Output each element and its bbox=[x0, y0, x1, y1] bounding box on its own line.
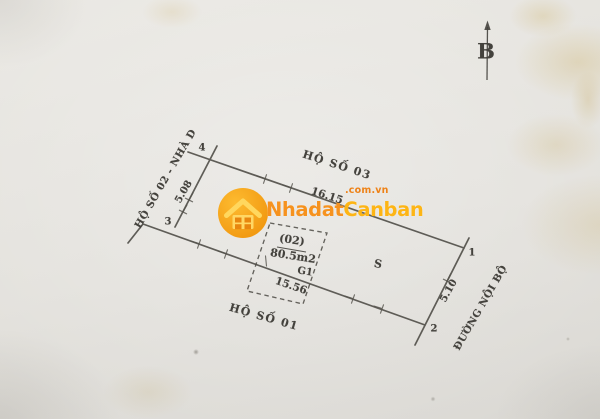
scanned-plot-sketch: NhadatCanban .com.vn B HỘ SỐ 03 16.15 HỘ… bbox=[0, 0, 600, 419]
north-compass-letter: B bbox=[477, 39, 495, 64]
corner-1: 1 bbox=[469, 248, 476, 259]
parcel-gate-label: G1 bbox=[296, 265, 313, 278]
corner-3: 3 bbox=[165, 217, 172, 228]
house-icon bbox=[218, 188, 268, 238]
watermark-logo-circle bbox=[218, 188, 268, 238]
north-arrow-head bbox=[484, 21, 490, 31]
corner-2: 2 bbox=[431, 324, 438, 335]
watermark-brand-text: NhadatCanban bbox=[266, 198, 423, 221]
corner-4: 4 bbox=[199, 143, 206, 154]
brand-second: Canban bbox=[343, 198, 423, 221]
watermark-tld-text: .com.vn bbox=[345, 185, 389, 196]
